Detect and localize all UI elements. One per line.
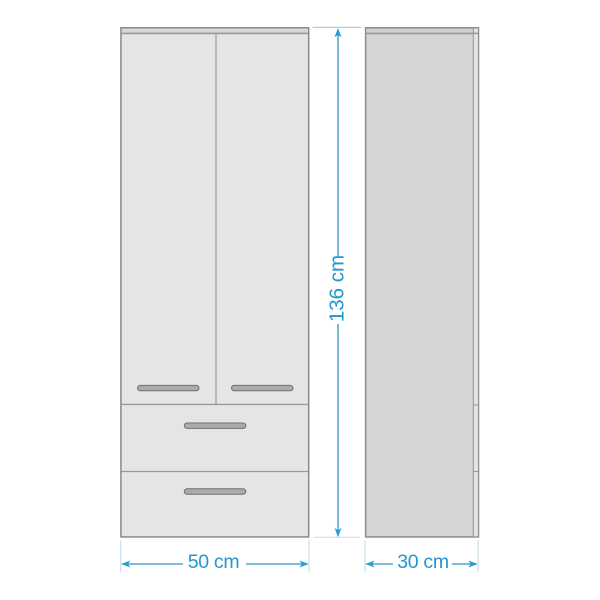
svg-text:136 cm: 136 cm	[325, 255, 348, 322]
svg-text:50 cm: 50 cm	[188, 551, 240, 573]
svg-text:30 cm: 30 cm	[397, 551, 449, 573]
